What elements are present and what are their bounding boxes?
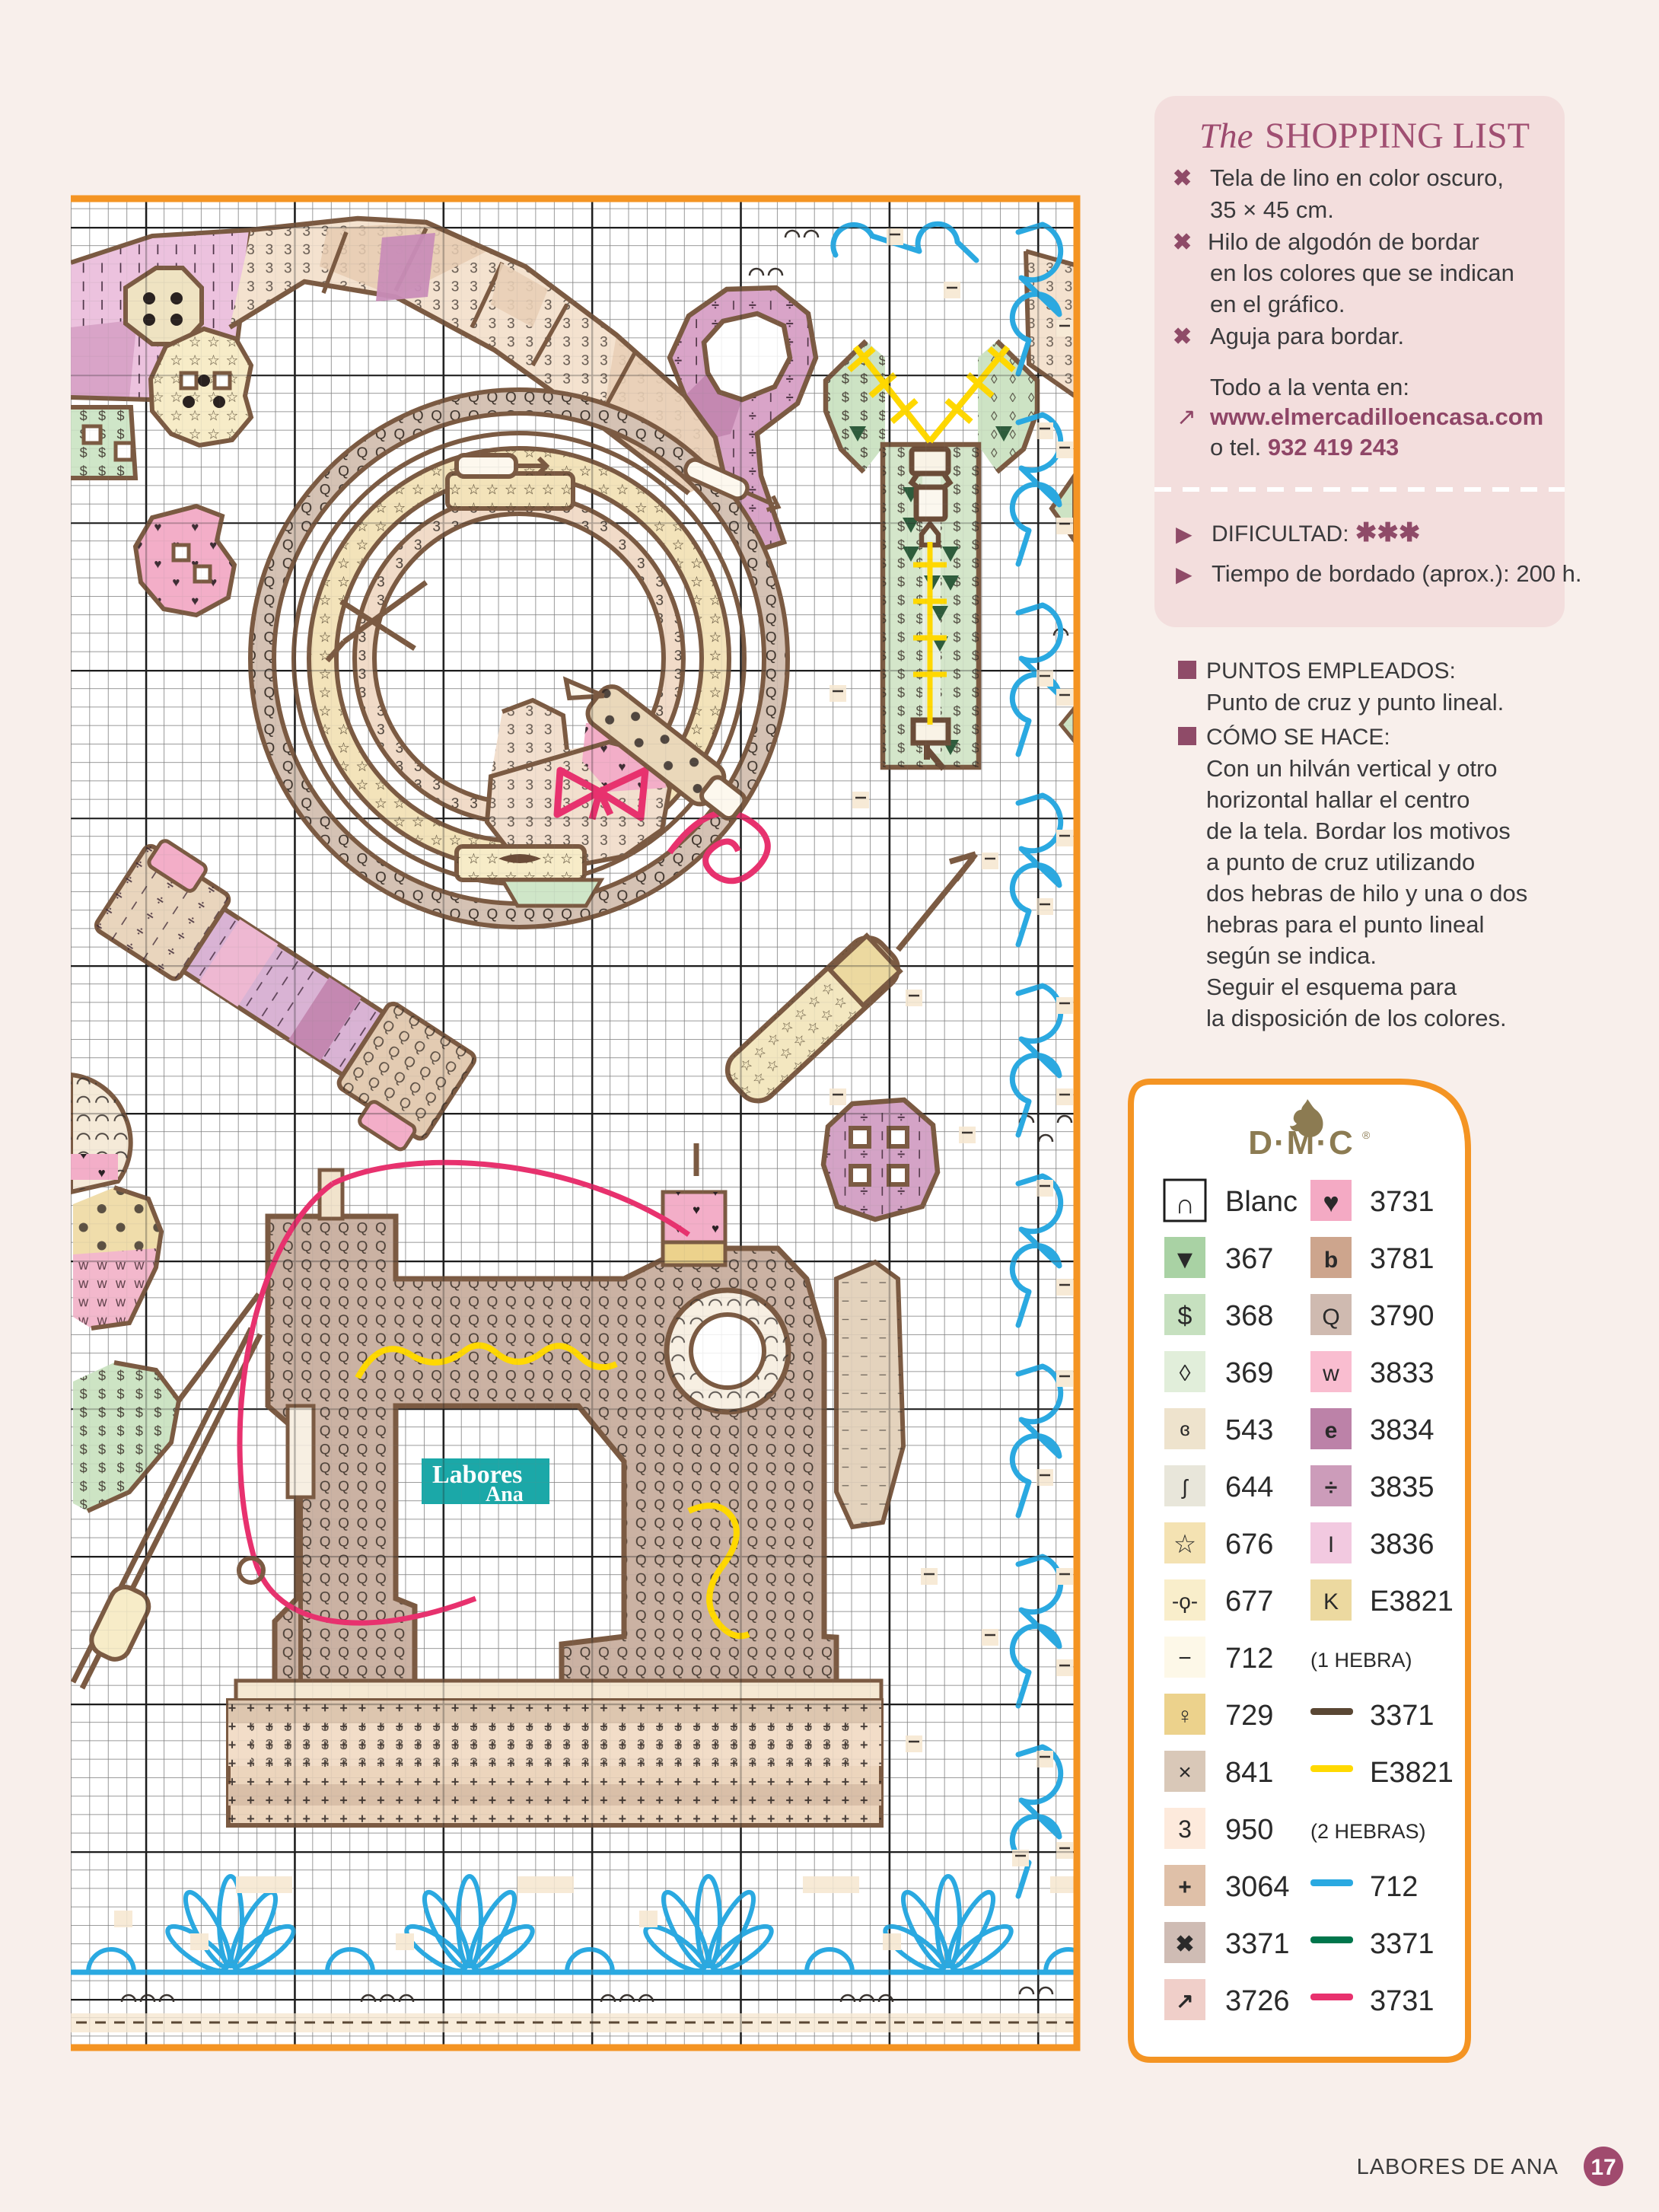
svg-text:3731: 3731 xyxy=(1370,1985,1435,2017)
svg-text:3781: 3781 xyxy=(1370,1243,1435,1275)
svg-text:17: 17 xyxy=(1591,2155,1616,2180)
svg-text:dos hebras de hilo y una o dos: dos hebras de hilo y una o dos xyxy=(1206,880,1527,907)
svg-text:Punto de cruz y punto lineal.: Punto de cruz y punto lineal. xyxy=(1206,689,1504,716)
svg-text:®: ® xyxy=(1362,1129,1371,1141)
svg-text:841: 841 xyxy=(1225,1757,1273,1789)
svg-text:543: 543 xyxy=(1225,1414,1273,1446)
svg-text:✖: ✖ xyxy=(1175,1932,1194,1957)
svg-text:D·M·C: D·M·C xyxy=(1248,1124,1355,1162)
svg-text:SHOPPING LIST: SHOPPING LIST xyxy=(1265,116,1530,156)
svg-text:w: w xyxy=(1322,1361,1339,1386)
svg-text:×: × xyxy=(1178,1760,1192,1785)
svg-text:368: 368 xyxy=(1225,1300,1273,1332)
svg-text:Seguir el esquema para: Seguir el esquema para xyxy=(1206,974,1457,1000)
svg-text:Tela de lino en color oscuro,: Tela de lino en color oscuro, xyxy=(1210,164,1504,191)
svg-text:www.elmercadilloencasa.com: www.elmercadilloencasa.com xyxy=(1209,403,1543,430)
svg-text:Aguja para bordar.: Aguja para bordar. xyxy=(1210,323,1404,349)
svg-text:la disposición de los colores.: la disposición de los colores. xyxy=(1206,1005,1507,1031)
svg-text:DIFICULTAD: ✱✱✱: DIFICULTAD: ✱✱✱ xyxy=(1212,518,1420,547)
svg-text:$: $ xyxy=(1178,1302,1193,1331)
svg-text:K: K xyxy=(1323,1589,1339,1614)
svg-text:Todo a la venta en:: Todo a la venta en: xyxy=(1210,374,1409,400)
svg-text:3835: 3835 xyxy=(1370,1471,1435,1503)
svg-text:3371: 3371 xyxy=(1370,1928,1435,1960)
svg-text:▶: ▶ xyxy=(1176,522,1193,546)
svg-text:Blanc: Blanc xyxy=(1225,1186,1298,1218)
svg-text:−: − xyxy=(1178,1646,1192,1671)
svg-text:E3821: E3821 xyxy=(1370,1757,1454,1789)
svg-text:(2 HEBRAS): (2 HEBRAS) xyxy=(1310,1820,1426,1843)
svg-text:▼: ▼ xyxy=(1172,1245,1198,1274)
svg-text:3371: 3371 xyxy=(1370,1700,1435,1732)
svg-text:950: 950 xyxy=(1225,1814,1273,1846)
svg-text:35 × 45 cm.: 35 × 45 cm. xyxy=(1210,196,1334,223)
svg-text:712: 712 xyxy=(1370,1871,1418,1903)
svg-text:676: 676 xyxy=(1225,1528,1273,1560)
svg-text:CÓMO SE HACE:: CÓMO SE HACE: xyxy=(1206,725,1390,750)
svg-text:según se indica.: según se indica. xyxy=(1206,942,1377,969)
svg-text:ɞ: ɞ xyxy=(1180,1417,1189,1440)
svg-text:Ana: Ana xyxy=(486,1483,524,1506)
svg-text:♀: ♀ xyxy=(1177,1704,1194,1729)
svg-text:✖: ✖ xyxy=(1173,324,1192,349)
svg-text:3731: 3731 xyxy=(1370,1186,1435,1218)
svg-text:677: 677 xyxy=(1225,1586,1273,1618)
svg-text:Hilo de algodón de bordar: Hilo de algodón de bordar xyxy=(1208,228,1479,255)
svg-text:369: 369 xyxy=(1225,1357,1273,1389)
svg-text:The: The xyxy=(1199,116,1253,156)
svg-text:♥: ♥ xyxy=(1323,1187,1339,1218)
svg-text:a punto de cruz utilizando: a punto de cruz utilizando xyxy=(1206,849,1475,875)
svg-text:3371: 3371 xyxy=(1225,1928,1290,1960)
svg-text:Tiempo de bordado (aprox.): 20: Tiempo de bordado (aprox.): 200 h. xyxy=(1212,560,1582,587)
svg-text:3833: 3833 xyxy=(1370,1357,1435,1389)
svg-text:↗: ↗ xyxy=(1176,1989,1193,2013)
svg-text:o tel. 932 419 243: o tel. 932 419 243 xyxy=(1210,434,1399,461)
svg-text:∩: ∩ xyxy=(1175,1188,1195,1219)
svg-text:644: 644 xyxy=(1225,1471,1273,1503)
svg-text:3726: 3726 xyxy=(1225,1985,1290,2017)
svg-text:b: b xyxy=(1324,1248,1338,1273)
svg-text:3834: 3834 xyxy=(1370,1414,1435,1446)
svg-text:÷: ÷ xyxy=(1325,1475,1337,1500)
svg-text:-ϙ-: -ϙ- xyxy=(1172,1589,1198,1613)
svg-text:3: 3 xyxy=(1178,1815,1192,1843)
svg-text:+: + xyxy=(1178,1875,1192,1900)
svg-text:Con un hilván vertical y otro: Con un hilván vertical y otro xyxy=(1206,755,1498,782)
svg-text:de la tela. Bordar los motivos: de la tela. Bordar los motivos xyxy=(1206,818,1511,844)
svg-text:3836: 3836 xyxy=(1370,1528,1435,1560)
svg-text:◊: ◊ xyxy=(1180,1361,1191,1386)
svg-text:PUNTOS EMPLEADOS:: PUNTOS EMPLEADOS: xyxy=(1206,658,1456,684)
svg-text:712: 712 xyxy=(1225,1643,1273,1675)
svg-text:3064: 3064 xyxy=(1225,1871,1290,1903)
svg-text:✖: ✖ xyxy=(1173,166,1192,191)
svg-text:LABORES DE ANA: LABORES DE ANA xyxy=(1357,2155,1559,2179)
svg-text:E3821: E3821 xyxy=(1370,1586,1454,1618)
svg-text:3790: 3790 xyxy=(1370,1300,1435,1332)
svg-text:▶: ▶ xyxy=(1176,563,1193,586)
svg-text:(1 HEBRA): (1 HEBRA) xyxy=(1310,1649,1412,1672)
svg-text:↗: ↗ xyxy=(1177,403,1196,430)
svg-text:en el gráfico.: en el gráfico. xyxy=(1210,291,1345,317)
svg-text:367: 367 xyxy=(1225,1243,1273,1275)
svg-text:✖: ✖ xyxy=(1173,230,1192,255)
svg-text:hebras para el punto lineal: hebras para el punto lineal xyxy=(1206,911,1484,938)
svg-text:horizontal hallar el centro: horizontal hallar el centro xyxy=(1206,786,1470,813)
svg-text:729: 729 xyxy=(1225,1700,1273,1732)
svg-text:☆: ☆ xyxy=(1173,1530,1196,1559)
svg-text:e: e xyxy=(1325,1418,1338,1443)
svg-text:en los colores que se indican: en los colores que se indican xyxy=(1210,260,1514,286)
svg-text:I: I xyxy=(1328,1532,1334,1557)
svg-text:Q: Q xyxy=(1322,1305,1339,1330)
